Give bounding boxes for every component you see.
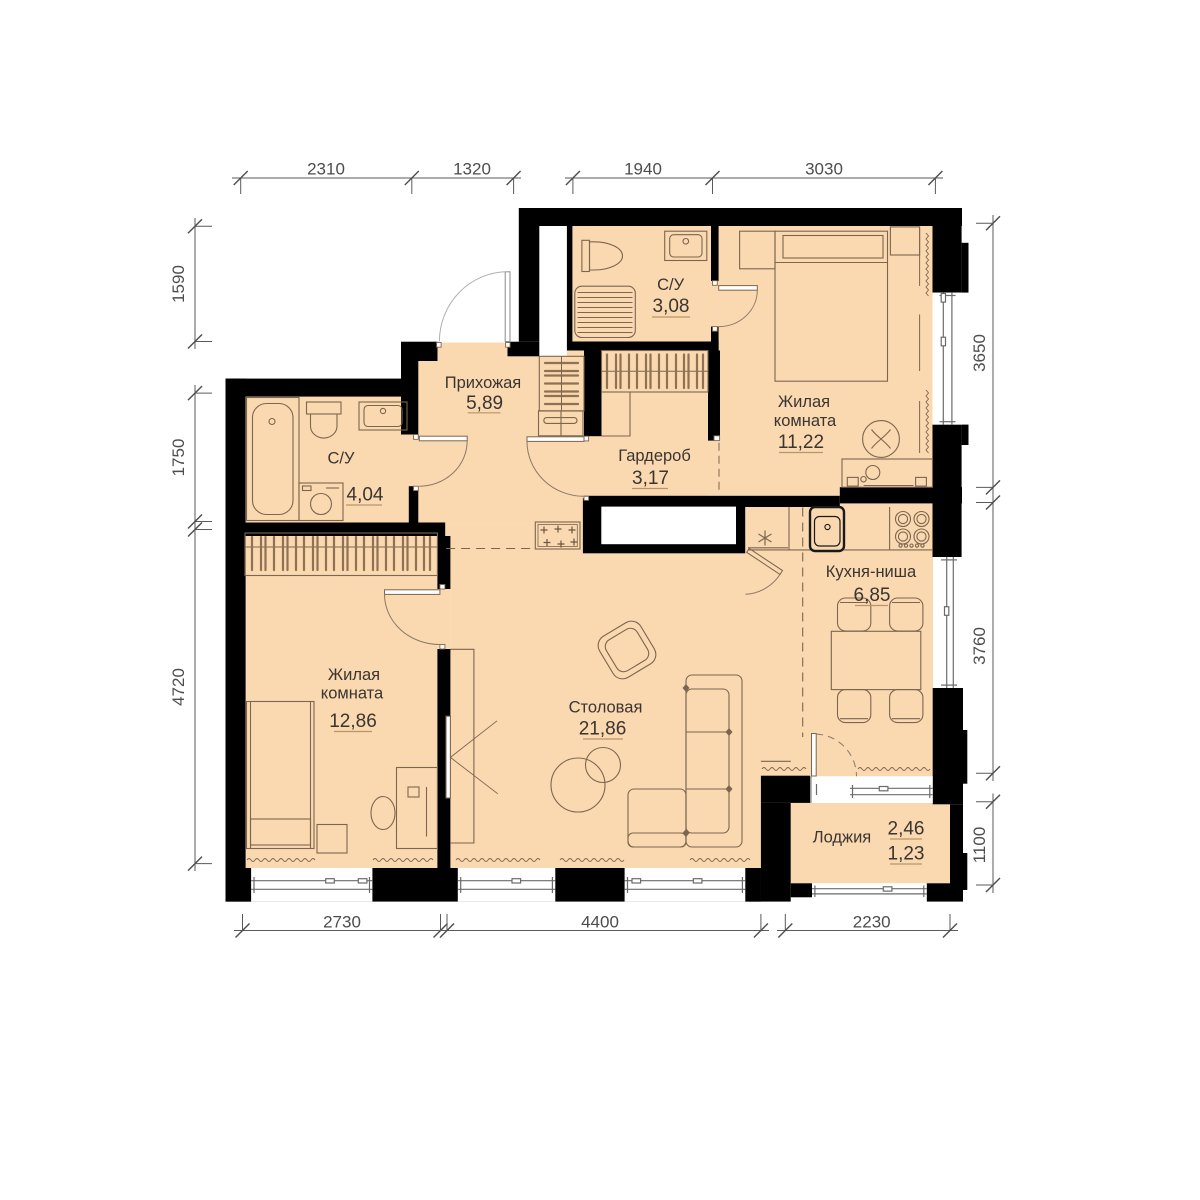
svg-text:1750: 1750 (169, 439, 188, 477)
svg-text:комната: комната (774, 412, 837, 430)
svg-text:1940: 1940 (624, 160, 662, 179)
svg-text:11,22: 11,22 (778, 432, 824, 453)
svg-text:12,86: 12,86 (329, 711, 377, 732)
svg-text:комната: комната (321, 685, 384, 703)
svg-text:2230: 2230 (853, 913, 891, 932)
svg-text:Гардероб: Гардероб (618, 447, 691, 465)
svg-text:4720: 4720 (169, 668, 188, 706)
svg-text:2310: 2310 (307, 160, 345, 179)
svg-text:4,04: 4,04 (347, 485, 384, 506)
svg-text:Жилая: Жилая (778, 393, 830, 411)
svg-text:2,46: 2,46 (888, 819, 925, 840)
svg-text:Столовая: Столовая (569, 699, 643, 717)
svg-text:21,86: 21,86 (579, 719, 627, 740)
svg-text:Прихожая: Прихожая (445, 374, 521, 392)
svg-text:4400: 4400 (581, 913, 619, 932)
svg-text:Жилая: Жилая (328, 666, 380, 684)
svg-text:6,85: 6,85 (854, 585, 891, 606)
svg-text:1,23: 1,23 (888, 844, 925, 865)
svg-text:5,89: 5,89 (466, 393, 503, 414)
svg-text:С/У: С/У (328, 450, 356, 468)
svg-text:3,17: 3,17 (632, 468, 669, 489)
svg-text:3030: 3030 (805, 160, 843, 179)
svg-text:3760: 3760 (970, 627, 989, 665)
svg-text:1320: 1320 (453, 160, 491, 179)
svg-text:1100: 1100 (970, 827, 989, 864)
svg-text:1590: 1590 (169, 265, 188, 303)
svg-text:Лоджия: Лоджия (813, 829, 871, 847)
svg-text:3650: 3650 (970, 334, 989, 372)
svg-text:С/У: С/У (657, 276, 685, 294)
svg-text:Кухня-ниша: Кухня-ниша (826, 563, 917, 581)
svg-text:3,08: 3,08 (653, 296, 690, 317)
svg-text:2730: 2730 (323, 913, 361, 932)
